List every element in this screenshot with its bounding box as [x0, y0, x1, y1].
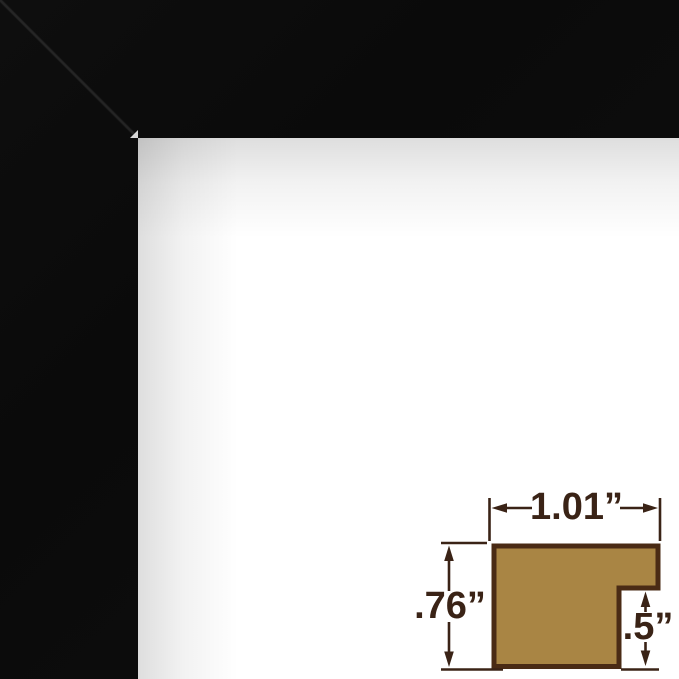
product-image: 1.01” .76” .5”: [0, 0, 679, 679]
rabbet-arrowhead-up-icon: [641, 592, 651, 608]
dimension-diagram: [0, 0, 679, 679]
width-dimension-label: 1.01”: [516, 487, 637, 527]
rabbet-dimension-label: .5”: [608, 607, 679, 647]
height-arrowhead-up-icon: [444, 546, 454, 562]
rabbet-arrowhead-down-icon: [641, 651, 651, 667]
height-dimension-label: .76”: [400, 586, 500, 626]
width-arrowhead-left-icon: [492, 503, 508, 513]
width-arrowhead-right-icon: [643, 503, 658, 513]
height-arrowhead-down-icon: [444, 652, 454, 668]
